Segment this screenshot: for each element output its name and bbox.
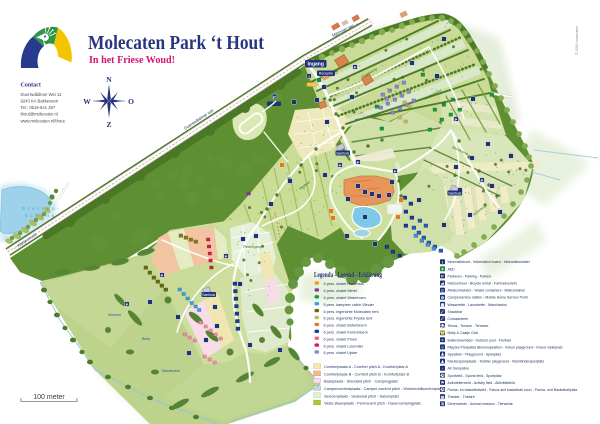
svg-text:www.molecaten.nl/thout: www.molecaten.nl/thout [21,118,66,123]
svg-text:O: O [128,97,134,106]
svg-text:Brink: Brink [142,337,150,341]
svg-text:© 2016 molecaten: © 2016 molecaten [575,26,579,55]
svg-text:☄: ☄ [441,316,445,321]
svg-text:4 pers. chalet Hortensia: 4 pers. chalet Hortensia [324,282,365,286]
svg-text:Dierenweide - Animal meadow -: Dierenweide - Animal meadow - Tierweide [448,402,513,406]
svg-text:Activiteitenveld - Activity fi: Activiteitenveld - Activity field - Akti… [448,381,515,385]
svg-text:☺: ☺ [440,345,444,350]
svg-text:⚽: ⚽ [439,373,445,378]
svg-text:4 pers. chalet Merel: 4 pers. chalet Merel [324,289,357,293]
svg-text:Sanihuis: Sanihuis [202,293,215,297]
svg-text:Contact: Contact [21,83,41,89]
svg-text:⛱: ⛱ [440,323,446,328]
svg-text:P: P [441,274,444,279]
svg-text:Informatiebord - Information b: Informatiebord - Information board - Inf… [448,260,530,264]
svg-text:♟: ♟ [441,359,445,364]
svg-text:100 meter: 100 meter [33,394,65,401]
svg-text:⚽: ⚽ [439,387,445,392]
svg-text:i: i [442,259,443,264]
svg-text:P: P [394,169,397,174]
svg-text:Kleuterspeelplaats - Toddler p: Kleuterspeelplaats - Toddler playground … [448,360,545,364]
svg-text:N: N [106,75,112,84]
svg-text:s c h a n s: s c h a n s [25,213,55,218]
svg-text:Sanihuis: Sanihuis [448,191,461,195]
svg-text:P: P [273,94,276,99]
svg-text:5 pers. kampeer cabin Vlinder: 5 pers. kampeer cabin Vlinder [324,303,375,307]
svg-text:P: P [481,178,484,183]
svg-text:⚑: ⚑ [441,380,445,385]
svg-text:Parkeren - Parking - Parken: Parkeren - Parking - Parken [448,274,491,278]
svg-text:Seizoenplaats - Seasonal pitch: Seizoenplaats - Seasonal pitch - Saisonp… [324,394,399,398]
svg-text:Flearekamp: Flearekamp [243,245,262,249]
svg-text:6 pers. chalet Lavendel: 6 pers. chalet Lavendel [324,344,363,348]
svg-text:6 pers. chalet Pioen: 6 pers. chalet Pioen [324,337,358,341]
svg-text:☃: ☃ [441,401,445,406]
svg-text:Vaste staanplaats - Permanent: Vaste staanplaats - Permanent pitch - Da… [324,402,421,406]
svg-text:▤: ▤ [441,394,445,399]
svg-text:S t e r r e n -: S t e r r e n - [22,206,60,211]
svg-text:Mandeveld: Mandeveld [162,369,180,373]
svg-text:Tel.: 0516-541 287: Tel.: 0516-541 287 [21,105,56,110]
svg-text:☄: ☄ [441,309,445,314]
svg-text:Snackbar: Snackbar [448,310,464,314]
svg-text:▯: ▯ [441,288,443,293]
svg-text:9243 KA Bakkeveen: 9243 KA Bakkeveen [21,99,59,104]
svg-text:♟: ♟ [441,352,445,357]
svg-text:Buitenzwembad - Outdoor pool -: Buitenzwembad - Outdoor pool - Freibad [448,338,511,342]
svg-text:Air trampoline: Air trampoline [448,367,470,371]
svg-text:P: P [354,65,357,70]
svg-text:Panna- en basketbalveld - Pann: Panna- en basketbalveld - Panna and bask… [448,388,578,392]
svg-text:↑: ↑ [442,366,444,371]
svg-text:P: P [455,117,458,122]
svg-text:Theater - Theatre: Theater - Theatre [448,395,475,399]
svg-text:Duerswâldmer Wei 11: Duerswâldmer Wei 11 [21,92,62,97]
svg-text:Z: Z [106,120,111,129]
svg-text:Flippies Pretpaleis Binnenspee: Flippies Pretpaleis Binnenspeeltuin - In… [448,345,563,349]
svg-text:6 pers. chalet Lijster: 6 pers. chalet Lijster [324,351,359,355]
svg-text:Afvalcontainers - Waste contai: Afvalcontainers - Waste containers - Mül… [448,289,527,293]
svg-text:Basisplaats - Standard pitch -: Basisplaats - Standard pitch - Campingpl… [324,380,398,384]
svg-text:Fietsverhuur - Bicycle rental: Fietsverhuur - Bicycle rental - Fahrradv… [448,282,517,286]
svg-text:Receptie: Receptie [319,72,333,76]
svg-text:4 pers. chalet Waterhoen: 4 pers. chalet Waterhoen [324,296,366,300]
svg-text:Croissanterie: Croissanterie [448,317,469,321]
svg-text:Sanihuis: Sanihuis [336,151,349,155]
svg-text:P: P [126,302,129,307]
svg-text:⚙: ⚙ [441,295,445,300]
svg-text:AED: AED [448,267,456,271]
svg-text:P: P [225,254,228,259]
svg-text:Molly & Caatje Club: Molly & Caatje Club [448,331,479,335]
svg-text:Speeltuin - Playground - Spiel: Speeltuin - Playground - Spielplatz [448,353,502,357]
svg-text:Wezzen: Wezzen [108,313,121,317]
svg-text:Legenda - Legend - Erklärung: Legenda - Legend - Erklärung [314,271,382,279]
svg-text:Comfortplaats B - Comfort pitc: Comfortplaats B - Comfort pitch B - Komf… [324,372,410,376]
svg-text:6 pers. chalet Boterbloem: 6 pers. chalet Boterbloem [324,324,367,328]
svg-text:6 pers. chalet Korenbloem: 6 pers. chalet Korenbloem [324,331,368,335]
svg-text:Camperservice station - Mobile: Camperservice station - Mobile Home Serv… [448,296,528,300]
svg-text:In het Friese Woud!: In het Friese Woud! [89,55,175,66]
svg-text:P: P [339,163,342,168]
svg-text:Sportveld - Sports field - Spo: Sportveld - Sports field - Sportplatz [448,374,503,378]
svg-text:Terras - Terrace - Terrasse: Terras - Terrace - Terrasse [448,324,489,328]
svg-text:Wasserette - Laundrette - Wasc: Wasserette - Laundrette - Waschsalon [448,303,508,307]
svg-text:thout@molecaten.nl: thout@molecaten.nl [21,112,58,117]
svg-text:Comfortplaats A - Comfort pitc: Comfortplaats A - Comfort pitch A - Komf… [324,365,408,369]
svg-text:Molecaten Park ‘t Hout: Molecaten Park ‘t Hout [88,33,264,54]
svg-text:P: P [161,273,164,278]
svg-text:Ingang: Ingang [308,62,324,68]
svg-text:W: W [83,97,91,106]
svg-text:▦: ▦ [441,302,445,307]
svg-text:i: i [308,74,309,79]
svg-text:Campercomfortplaats - Camper c: Campercomfortplaats - Camper comfort pit… [324,387,443,391]
svg-text:6 pers. ingerichte Fryske tent: 6 pers. ingerichte Fryske tent [324,317,374,321]
svg-text:6 pers. ingerichte Molecaten t: 6 pers. ingerichte Molecaten tent [324,310,380,314]
svg-text:P: P [357,160,360,165]
